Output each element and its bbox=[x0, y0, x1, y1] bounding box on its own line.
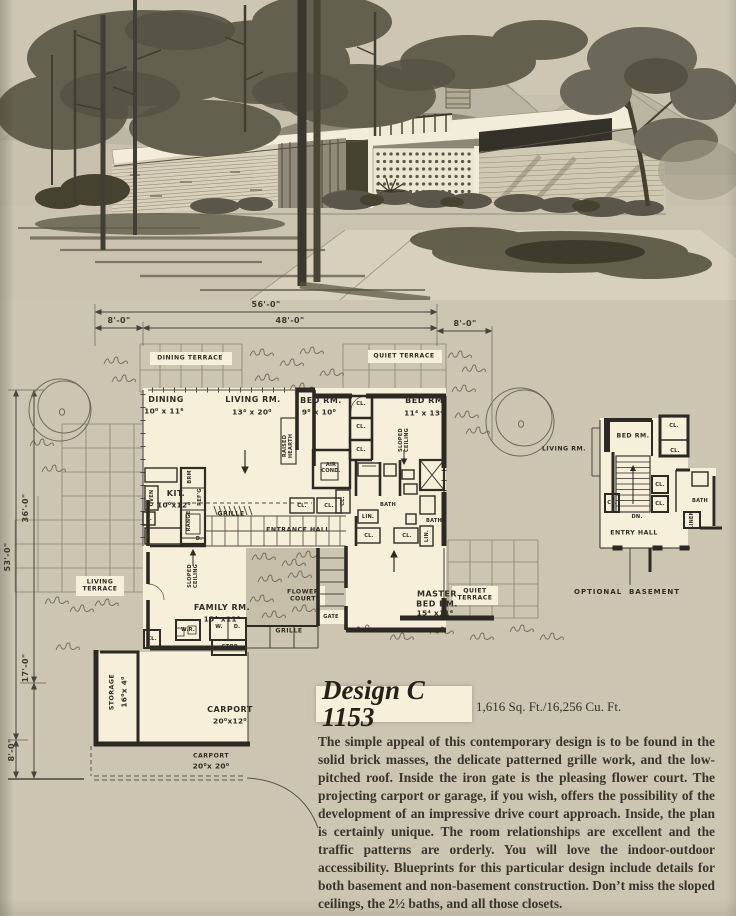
label-closet: CL. bbox=[356, 424, 366, 430]
label-dishwasher: D. bbox=[196, 536, 203, 542]
size-master-bed-rm: 15⁴ x11⁶ bbox=[417, 610, 454, 619]
label-basement-living-rm: LIVING RM. bbox=[542, 445, 586, 452]
label-closet: CL. bbox=[655, 501, 665, 507]
label-closet: CL. bbox=[324, 503, 334, 509]
floor-plan-section: 56'-0" 8'-0" 48'-0" 8'-0" 53'-0" 36'-0" … bbox=[0, 300, 736, 916]
size-bed-rm-2: 11⁴ x 13⁴ bbox=[404, 410, 444, 419]
label-closet: CL. bbox=[607, 500, 617, 506]
label-bed-rm-1: BED RM. bbox=[300, 396, 342, 406]
label-broom: BRM bbox=[187, 470, 193, 483]
size-storage: 16⁰x 4⁰ bbox=[121, 676, 130, 707]
label-closet: CL. bbox=[356, 447, 366, 453]
label-master-bed-rm: MASTER BED RM. bbox=[416, 589, 458, 608]
label-living-terrace: LIVING TERRACE bbox=[82, 579, 117, 594]
basement-caption: OPTIONAL BASEMENT bbox=[574, 588, 680, 596]
label-bath-2: BATH bbox=[426, 518, 442, 524]
label-grille-top: GRILLE bbox=[217, 510, 244, 517]
size-kitchen: 10⁰x12⁰ bbox=[157, 502, 191, 511]
label-water-heater: W.R. bbox=[181, 627, 195, 633]
label-linen-2: LIN. bbox=[424, 530, 430, 542]
dim-total-width: 56'-0" bbox=[251, 300, 280, 310]
label-raised-hearth: RAISED HEARTH bbox=[282, 434, 294, 458]
label-flower-court: FLOWER COURT bbox=[287, 589, 319, 604]
label-storage: STORAGE bbox=[108, 674, 115, 710]
label-dryer: D. bbox=[234, 624, 241, 630]
label-stairs-down: DN. bbox=[631, 514, 642, 520]
design-description: The simple appeal of this contemporary d… bbox=[318, 733, 715, 913]
dim-left-offset: 8'-0" bbox=[107, 316, 130, 326]
label-quiet-terrace-bottom: QUIET TERRACE bbox=[457, 588, 492, 603]
size-carport-future: 20⁰x 20⁰ bbox=[193, 763, 230, 772]
house-illustration bbox=[0, 0, 736, 300]
label-closet: CL. bbox=[364, 533, 374, 539]
label-kitchen: KIT. bbox=[167, 489, 185, 499]
label-sloped-ceiling-family: SLOPED CEILING bbox=[187, 564, 199, 588]
label-basement-bed-rm: BED RM. bbox=[616, 432, 649, 439]
label-dining-terrace: DINING TERRACE bbox=[157, 354, 223, 361]
dim-house-width: 48'-0" bbox=[275, 316, 304, 326]
label-closet: CL. bbox=[670, 448, 680, 454]
design-number: Design C 1153 bbox=[316, 677, 472, 731]
label-closet: CL. bbox=[356, 401, 366, 407]
label-entrance-hall: ENTRANCE HALL bbox=[266, 526, 330, 533]
label-gate: GATE bbox=[323, 614, 338, 620]
label-linen: LINEN bbox=[689, 511, 695, 529]
dim-right-offset: 8'-0" bbox=[453, 319, 476, 329]
size-carport: 20⁰x12⁰ bbox=[213, 718, 247, 727]
label-storage-closet: STOR. bbox=[222, 644, 240, 650]
size-living-rm: 13⁴ x 20⁰ bbox=[232, 409, 272, 418]
label-bath-1: BATH bbox=[380, 502, 396, 508]
label-sloped-ceiling-bed: SLOPED CEILING bbox=[398, 428, 410, 452]
label-linen-1: LIN. bbox=[362, 514, 374, 520]
dim-total-depth: 53'-0" bbox=[3, 542, 13, 571]
label-closet: CL. bbox=[147, 636, 157, 642]
label-family-rm: FAMILY RM. bbox=[194, 603, 250, 613]
label-closet: CL. bbox=[655, 482, 665, 488]
dim-carport-offset: 8'-0" bbox=[7, 738, 17, 761]
label-living-rm: LIVING RM. bbox=[225, 395, 280, 405]
label-closet: CL. bbox=[297, 503, 307, 509]
label-oven: OVEN bbox=[149, 490, 155, 507]
dim-lower-depth: 17'-0" bbox=[21, 653, 31, 682]
label-washer: W. bbox=[215, 624, 223, 630]
label-dining: DINING bbox=[148, 395, 184, 405]
label-closet: CL. bbox=[402, 533, 412, 539]
catalog-page: 56'-0" 8'-0" 48'-0" 8'-0" 53'-0" 36'-0" … bbox=[0, 0, 736, 916]
dim-upper-depth: 36'-0" bbox=[21, 493, 31, 522]
label-carport: CARPORT bbox=[207, 705, 253, 715]
label-refrigerator: REF'G bbox=[197, 488, 203, 506]
label-quiet-terrace-top: QUIET TERRACE bbox=[373, 352, 434, 359]
label-range: RANGE bbox=[186, 511, 192, 532]
label-bed-rm-2: BED RM. bbox=[405, 396, 447, 406]
label-basement-bath: BATH bbox=[692, 498, 708, 504]
design-title-box: Design C 1153 bbox=[316, 686, 472, 722]
design-stats: 1,616 Sq. Ft./16,256 Cu. Ft. bbox=[476, 699, 726, 715]
label-grille-bottom: GRILLE bbox=[275, 627, 302, 634]
label-closet: CL. bbox=[340, 496, 346, 506]
size-bed-rm-1: 9⁰ x 10⁰ bbox=[302, 409, 336, 418]
label-entry-hall: ENTRY HALL bbox=[610, 529, 658, 536]
label-carport-future: CARPORT bbox=[193, 752, 229, 759]
label-air-cond: AIR COND. bbox=[321, 462, 341, 474]
label-sink: S. bbox=[146, 516, 152, 522]
label-closet: CL. bbox=[669, 423, 679, 429]
size-dining: 10⁰ x 11⁶ bbox=[144, 408, 184, 417]
